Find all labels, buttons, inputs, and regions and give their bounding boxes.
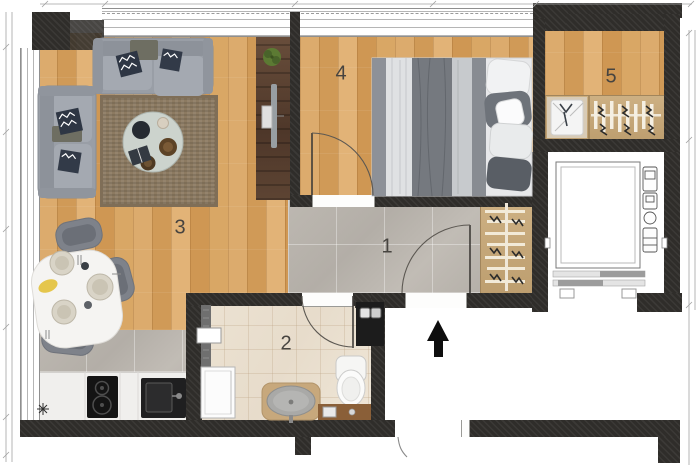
toilet xyxy=(336,356,366,406)
plant-icon xyxy=(263,48,281,66)
shaft-jamb-left xyxy=(545,238,550,248)
shaft-jamb-right xyxy=(662,238,667,248)
radiator-icon xyxy=(197,305,221,367)
bed xyxy=(372,58,533,196)
bathroom-door xyxy=(302,296,353,348)
room-label-hallway: 1 xyxy=(381,236,392,259)
bath-shelf xyxy=(318,404,371,420)
washing-machine xyxy=(201,367,235,418)
sofa-left xyxy=(38,86,96,198)
kitchen-sink xyxy=(141,378,186,418)
bedroom-door xyxy=(312,133,373,195)
north-arrow-icon xyxy=(427,320,449,357)
bathroom-fixtures xyxy=(197,302,384,423)
hallway-wardrobe-contents xyxy=(485,203,525,291)
tv-icon xyxy=(262,84,284,148)
room-label-bathroom: 2 xyxy=(280,333,291,356)
elevator-doors xyxy=(553,271,645,298)
cooktop xyxy=(87,376,118,418)
closet-wardrobe-contents xyxy=(547,96,661,139)
sofa-top xyxy=(93,38,213,96)
room-label-living: 3 xyxy=(174,217,185,240)
kitchen-star-symbol xyxy=(37,403,49,415)
washbasin xyxy=(262,383,320,423)
elevator xyxy=(545,162,667,298)
coffee-table xyxy=(123,112,183,172)
floor-plan: 1 2 3 4 5 xyxy=(0,0,700,469)
corridor-door xyxy=(398,437,407,457)
entry-door xyxy=(402,225,470,293)
room-label-closet: 5 xyxy=(605,66,616,89)
plan-linework xyxy=(0,0,700,469)
elevator-equipment xyxy=(643,167,657,252)
dining-set xyxy=(28,216,137,357)
boiler-unit xyxy=(356,302,384,346)
room-label-bedroom: 4 xyxy=(335,63,346,86)
